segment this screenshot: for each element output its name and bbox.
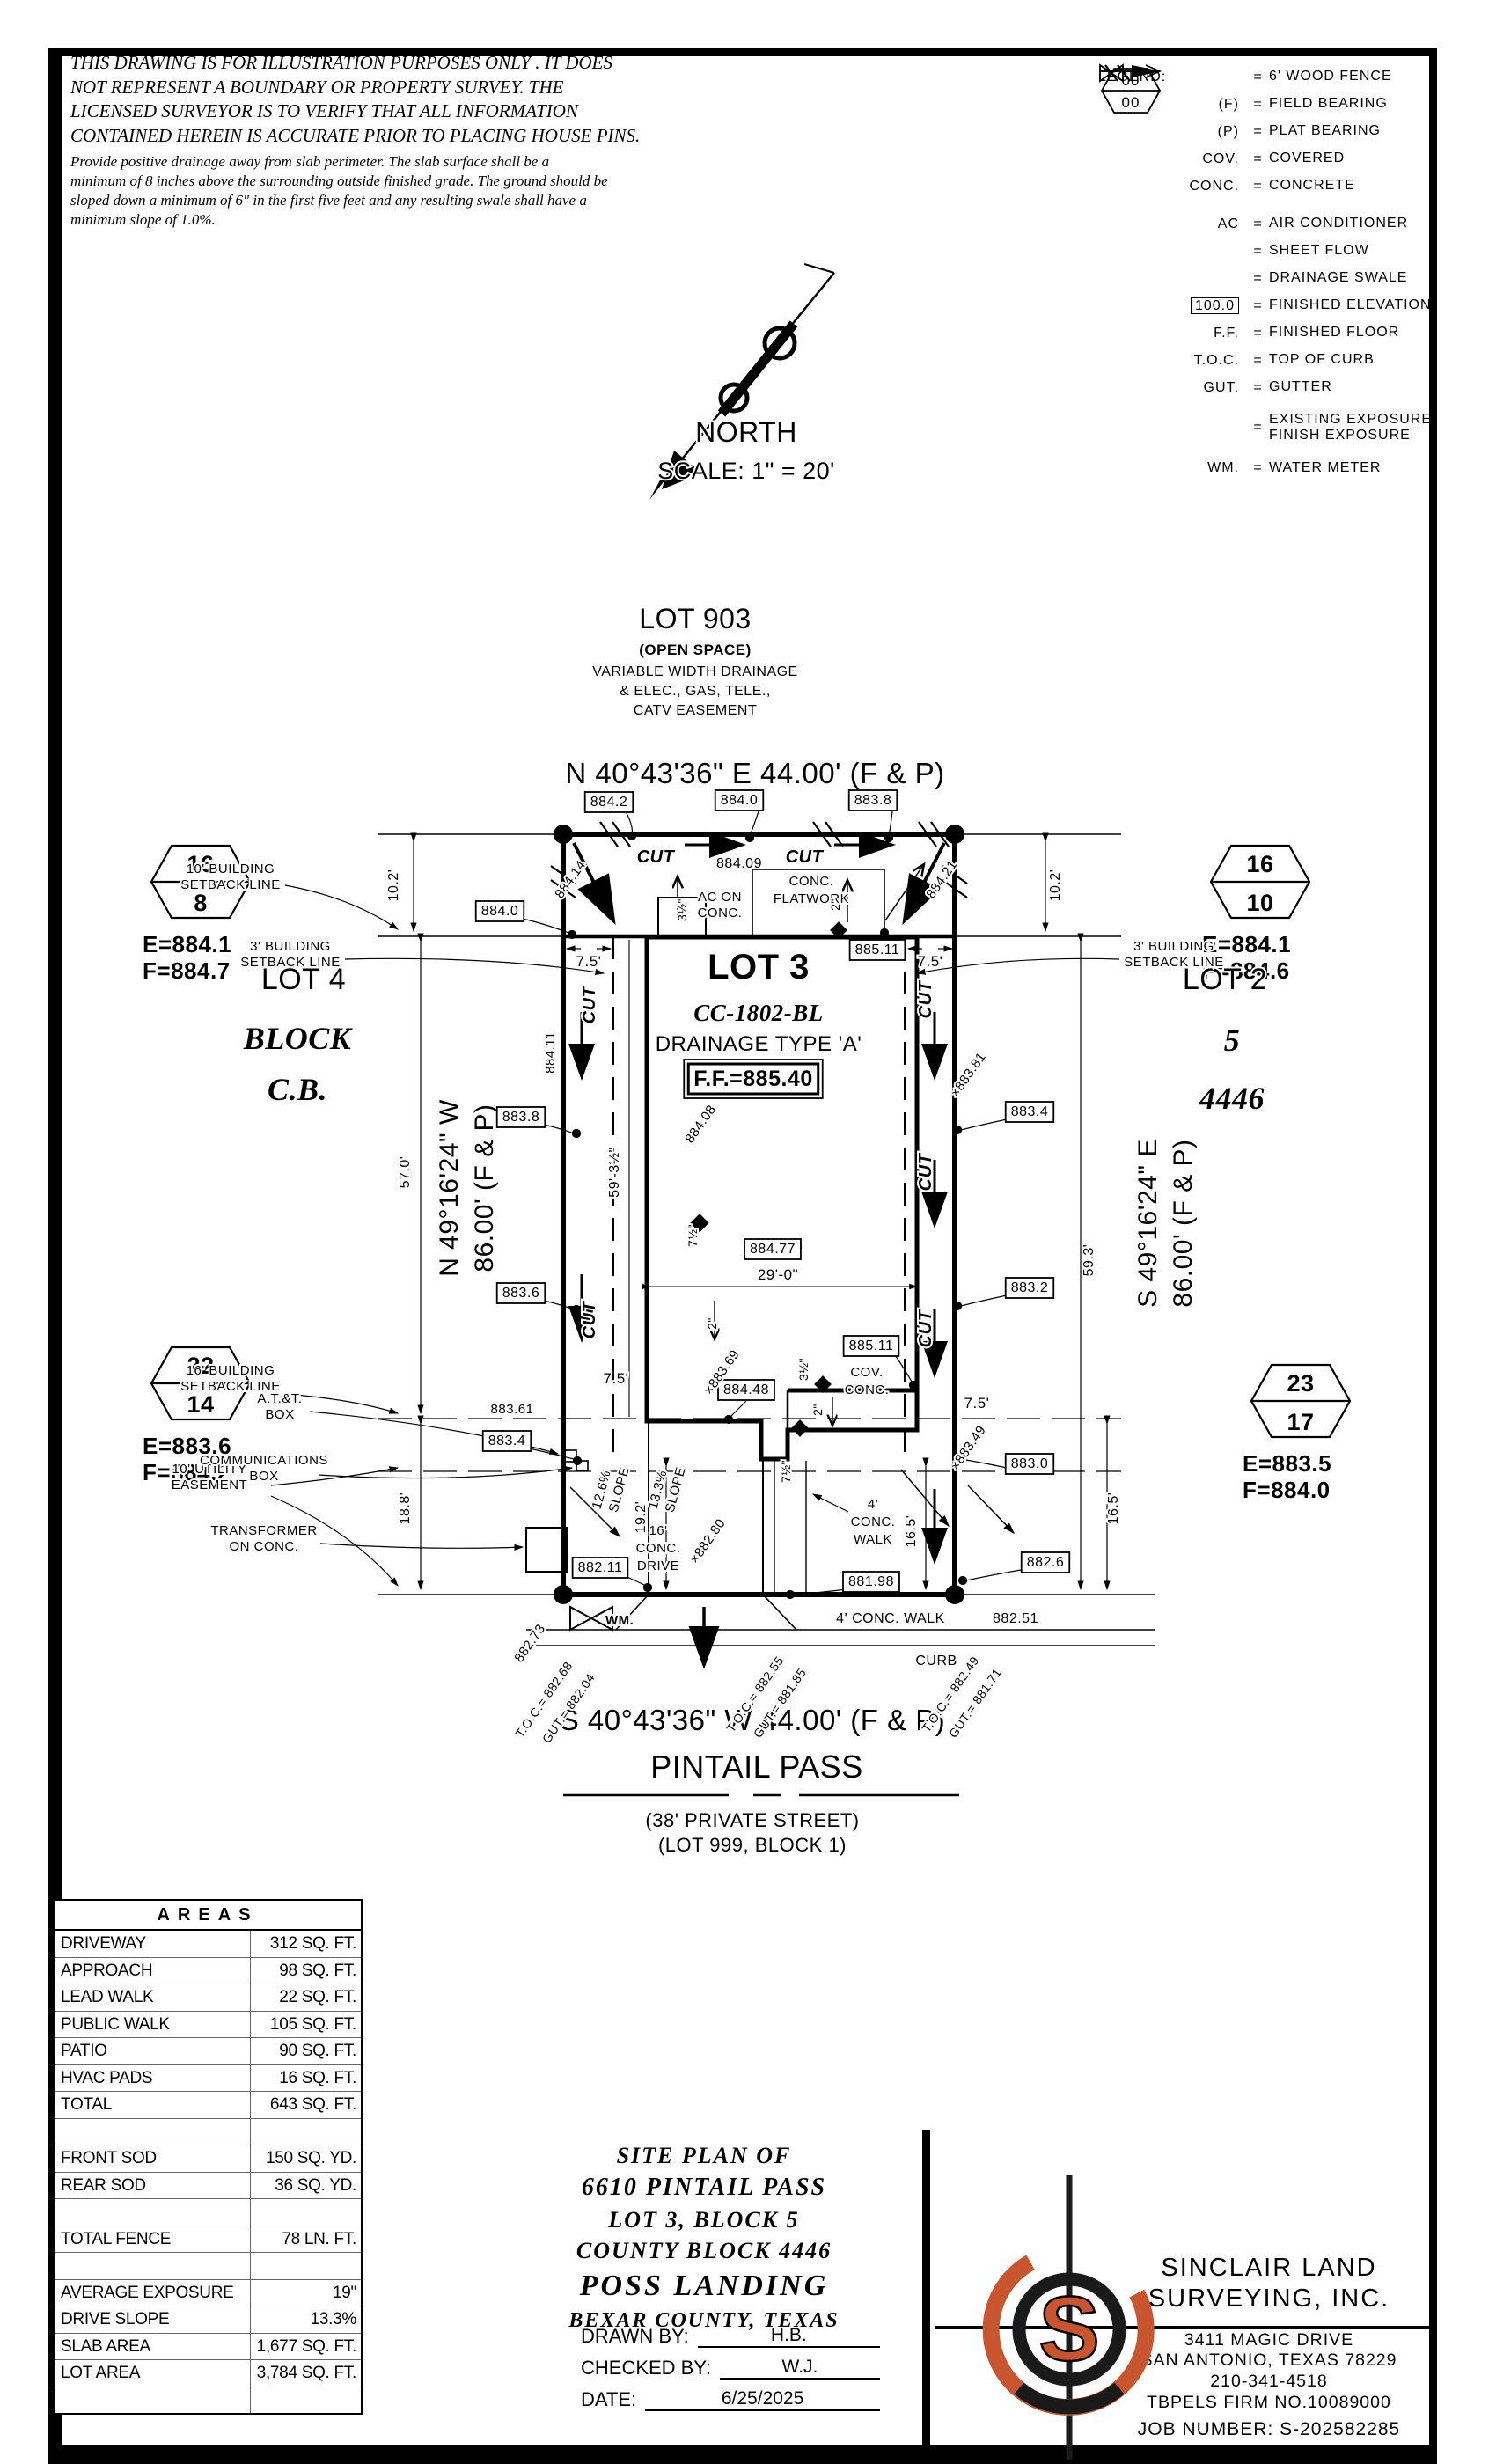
plat-label: BOX (265, 1407, 294, 1422)
plat-label: 881.98 (848, 1574, 894, 1589)
plat-label: 883.4 (488, 1434, 526, 1448)
area-label (55, 2387, 251, 2414)
plat-label: DRAINAGE TYPE 'A' (656, 1032, 862, 1056)
plat-label: CONC. (845, 1382, 890, 1397)
drawn-by-label: DRAWN BY: (581, 2325, 689, 2348)
area-label: APPROACH (55, 1958, 251, 1984)
plat-label: 5 (1224, 1023, 1241, 1058)
plat-label: SETBACK LINE (180, 877, 281, 892)
plat-label: 10.2' (1048, 869, 1063, 902)
plat-label: 2" (810, 1404, 825, 1416)
plat-label: COV. (850, 1365, 883, 1380)
area-value: 36 SQ. YD. (251, 2173, 361, 2199)
plat-label: BOX (249, 1469, 278, 1484)
table-row: TOTAL643 SQ. FT. (55, 2092, 361, 2119)
table-row: DRIVEWAY312 SQ. FT. (55, 1931, 361, 1958)
plat-label: WM. (605, 1613, 634, 1628)
table-row: DRIVE SLOPE13.3% (55, 2306, 361, 2334)
plat-label: CONC. (851, 1514, 896, 1529)
plat-label: CC-1802-BL (693, 1000, 824, 1026)
area-value: 90 SQ. FT. (251, 2038, 361, 2064)
plat-label: PINTAIL PASS (650, 1749, 862, 1785)
plat-label: 884.0 (481, 904, 519, 919)
plat-label: 883.8 (502, 1110, 540, 1125)
plat-label: EASEMENT (172, 1478, 248, 1492)
plat-label: 882.51 (993, 1611, 1038, 1626)
area-label: SLAB AREA (55, 2334, 251, 2360)
plat-label: 18.8' (398, 1492, 413, 1525)
plat-label: 883.6 (502, 1286, 540, 1301)
plat-label: 883.0 (1011, 1456, 1049, 1471)
plat-label: CUT (580, 985, 599, 1023)
plat-label: 10.2' (386, 869, 401, 902)
table-row: SLAB AREA1,677 SQ. FT. (55, 2334, 361, 2361)
date-value: 6/25/2025 (645, 2388, 880, 2411)
table-row (55, 2387, 361, 2414)
plat-label: 2" (705, 1317, 719, 1330)
plat-label: 16' BUILDING (187, 1363, 275, 1378)
plat-label: 882.11 (578, 1560, 623, 1575)
plat-label: N 40°43'36" E 44.00' (F & P) (565, 757, 944, 789)
logo-letter: S (1038, 2278, 1099, 2380)
plat-label: AC ON (698, 890, 742, 905)
plat-label: 59'-3½" (607, 1147, 622, 1198)
table-row: APPROACH98 SQ. FT. (55, 1958, 361, 1985)
crosshair-logo-icon: S (963, 2175, 1174, 2460)
plat-label: N 49°16'24" W (435, 1099, 464, 1277)
hexagon-value: 16 (1246, 851, 1273, 877)
hexagon-value: E=883.5 (1243, 1450, 1331, 1477)
hexagon-value: F=884.7 (143, 957, 231, 984)
area-label: PATIO (55, 2038, 251, 2064)
area-value: 150 SQ. YD. (251, 2145, 361, 2172)
drawn-by-value: H.B. (698, 2325, 880, 2348)
hexagon-value: 8 (194, 890, 208, 916)
plat-label: 86.00' (F & P) (1169, 1139, 1198, 1307)
plat-label: 3½" (675, 898, 689, 921)
table-row: AVERAGE EXPOSURE19" (55, 2280, 361, 2307)
table-row: TOTAL FENCE78 LN. FT. (55, 2226, 361, 2254)
table-row: PUBLIC WALK105 SQ. FT. (55, 2012, 361, 2039)
plat-label: CUT (916, 979, 935, 1018)
area-value: 16 SQ. FT. (251, 2065, 361, 2092)
plat-labels: NORTHSCALE: 1" = 20'LOT 903(OPEN SPACE)V… (172, 416, 1267, 1856)
plat-label: 2" (828, 898, 842, 911)
hexagon-value: 14 (187, 1391, 214, 1418)
area-value (251, 2253, 361, 2279)
plat-label: CURB (915, 1654, 957, 1668)
plat-label: C.B. (268, 1072, 327, 1107)
plat-label: CONC. (789, 874, 834, 889)
plat-label: 883.2 (1011, 1280, 1049, 1295)
table-row: LEAD WALK22 SQ. FT. (55, 1984, 361, 2012)
plat-label: (OPEN SPACE) (639, 642, 752, 658)
plat-label: 884.0 (721, 793, 759, 808)
area-value: 3,784 SQ. FT. (251, 2360, 361, 2387)
site-plan-page: THIS DRAWING IS FOR ILLUSTRATION PURPOSE… (0, 0, 1496, 2464)
plat-label: 884.77 (750, 1242, 796, 1257)
area-label (55, 2199, 251, 2226)
title-block-divider (922, 2130, 930, 2446)
plat-label: 883.61 (491, 1402, 534, 1417)
table-row: REAR SOD36 SQ. YD. (55, 2173, 361, 2200)
area-value (251, 2199, 361, 2226)
plat-label: 29'-0" (758, 1266, 798, 1283)
plat-label: CONC. (636, 1541, 681, 1556)
plat-label: 10' BUILDING (187, 862, 275, 876)
area-value: 22 SQ. FT. (251, 1984, 361, 2011)
plat-label: 3' BUILDING (1133, 939, 1214, 954)
plat-label: LOT 3 (708, 948, 810, 986)
plat-label: 7½" (686, 1224, 700, 1247)
hexagon-value: E=884.1 (143, 931, 231, 957)
area-label: LEAD WALK (55, 1984, 251, 2011)
plat-label: 3' BUILDING (250, 939, 331, 954)
plat-label: S 49°16'24" E (1133, 1139, 1162, 1308)
hexagon-value: 23 (1287, 1370, 1314, 1397)
area-value: 78 LN. FT. (251, 2226, 361, 2253)
signature-block: DRAWN BY: H.B. CHECKED BY: W.J. DATE: 6/… (581, 2325, 880, 2420)
area-label (55, 2119, 251, 2145)
plat-label: CUT (637, 847, 676, 867)
hexagon-value: 17 (1287, 1409, 1314, 1435)
area-label: HVAC PADS (55, 2065, 251, 2092)
plat-label: 883.4 (1011, 1104, 1049, 1119)
plat-label: CUT (786, 847, 825, 867)
plat-drawing: 168E=884.1F=884.71610E=884.1F=884.62214E… (0, 0, 1496, 1954)
plat-label: NORTH (695, 416, 797, 448)
table-row: PATIO90 SQ. FT. (55, 2038, 361, 2065)
area-label (55, 2253, 251, 2279)
plat-label: WALK (854, 1532, 892, 1547)
plat-label: CUT (916, 1152, 935, 1191)
plat-label: SETBACK LINE (240, 955, 341, 970)
plat-label: ×882.80 (687, 1516, 729, 1566)
title-line: LOT 3, BLOCK 5 (475, 2204, 933, 2235)
table-row: FRONT SOD150 SQ. YD. (55, 2145, 361, 2173)
plat-label: 16' (649, 1523, 667, 1538)
plat-label: 884.08 (682, 1103, 719, 1147)
plat-label: 884.48 (723, 1382, 769, 1397)
plat-label: 883.8 (854, 793, 892, 808)
title-block: SITE PLAN OF 6610 PINTAIL PASS LOT 3, BL… (475, 2140, 933, 2335)
plat-label: LOT 903 (639, 603, 751, 634)
hexagon-value: F=884.0 (1243, 1477, 1331, 1503)
plat-label: DRIVE (637, 1558, 679, 1573)
area-value: 105 SQ. FT. (251, 2012, 361, 2038)
table-row (55, 2253, 361, 2280)
table-row: LOT AREA3,784 SQ. FT. (55, 2360, 361, 2387)
area-value: 643 SQ. FT. (251, 2092, 361, 2118)
areas-table-rows: DRIVEWAY312 SQ. FT.APPROACH98 SQ. FT.LEA… (55, 1931, 361, 2413)
plat-label: 882.73 (511, 1622, 548, 1666)
plat-label: 7½" (779, 1460, 793, 1483)
area-value: 13.3% (251, 2306, 361, 2333)
plat-label: VARIABLE WIDTH DRAINAGE (592, 664, 797, 679)
plat-label: 885.11 (849, 1338, 894, 1353)
table-row (55, 2199, 361, 2226)
area-value: 19" (251, 2280, 361, 2306)
plat-label: 885.11 (855, 942, 900, 957)
areas-table: AREAS DRIVEWAY312 SQ. FT.APPROACH98 SQ. … (53, 1899, 363, 2415)
plat-label: & ELEC., GAS, TELE., (620, 684, 771, 699)
plat-label: 884.11 (543, 1031, 558, 1074)
area-value (251, 2119, 361, 2145)
area-label: DRIVE SLOPE (55, 2306, 251, 2333)
plat-label: 16.5' (1106, 1492, 1121, 1525)
plat-label: 86.00' (F & P) (470, 1104, 499, 1272)
title-line: COUNTY BLOCK 4446 (475, 2235, 933, 2266)
table-row (55, 2119, 361, 2146)
plat-label: 59.3' (1082, 1244, 1096, 1277)
area-label: REAR SOD (55, 2173, 251, 2199)
plat-label: (38' PRIVATE STREET) (645, 1809, 859, 1831)
plat-label: 4446 (1199, 1081, 1265, 1116)
plat-label: CUT (580, 1300, 599, 1338)
plat-label: 882.6 (1027, 1555, 1065, 1570)
plat-label: 7.5' (604, 1370, 629, 1387)
plat-label: 7.5' (576, 953, 602, 970)
plat-label: 3½" (796, 1358, 810, 1381)
plat-label: A.T.&T. (257, 1391, 302, 1406)
plat-label: 7.5' (964, 1395, 990, 1412)
table-row: HVAC PADS16 SQ. FT. (55, 2065, 361, 2093)
area-label: TOTAL FENCE (55, 2226, 251, 2253)
area-label: DRIVEWAY (55, 1931, 251, 1957)
plat-label: (LOT 999, BLOCK 1) (658, 1834, 847, 1856)
date-label: DATE: (581, 2388, 636, 2411)
area-label: FRONT SOD (55, 2145, 251, 2172)
area-label: LOT AREA (55, 2360, 251, 2387)
plat-label: CUT (916, 1309, 935, 1347)
plat-label: SETBACK LINE (1124, 955, 1224, 970)
area-label: TOTAL (55, 2092, 251, 2118)
plat-label: 57.0' (398, 1156, 413, 1189)
plat-label: 4' CONC. WALK (836, 1611, 945, 1626)
areas-table-title: AREAS (55, 1901, 361, 1931)
plat-label: CATV EASEMENT (634, 703, 757, 718)
plat-label: BLOCK (243, 1021, 354, 1056)
plat-label: CONC. (698, 906, 743, 920)
plat-label: F.F.=885.40 (693, 1067, 812, 1091)
title-line: POSS LANDING (475, 2266, 933, 2306)
title-line: SITE PLAN OF (475, 2140, 933, 2171)
area-value: 312 SQ. FT. (251, 1931, 361, 1957)
plat-label: COMMUNICATIONS (200, 1453, 328, 1468)
hexagon-value: E=884.1 (1202, 931, 1291, 957)
area-label: PUBLIC WALK (55, 2012, 251, 2038)
area-value: 1,677 SQ. FT. (251, 2334, 361, 2360)
exposure-hexagon: 2317E=883.5F=884.0 (1243, 1365, 1350, 1503)
area-value (251, 2387, 361, 2414)
plat-label: TRANSFORMER (210, 1523, 317, 1538)
area-value: 98 SQ. FT. (251, 1958, 361, 1984)
plat-label: 884.2 (590, 795, 628, 810)
hexagon-value: 10 (1246, 890, 1273, 916)
plat-label: ON CONC. (230, 1539, 299, 1554)
checked-by-value: W.J. (720, 2357, 880, 2380)
plat-label: 884.09 (716, 856, 762, 871)
plat-label: 16.5' (904, 1515, 919, 1548)
checked-by-label: CHECKED BY: (581, 2357, 711, 2380)
title-line: 6610 PINTAIL PASS (475, 2171, 933, 2204)
plat-label: 4' (868, 1497, 878, 1512)
plat-label: SCALE: 1" = 20' (657, 458, 835, 484)
area-label: AVERAGE EXPOSURE (55, 2280, 251, 2306)
firm-logo: S (933, 2160, 1443, 2464)
plat-label: 7.5' (918, 953, 943, 970)
